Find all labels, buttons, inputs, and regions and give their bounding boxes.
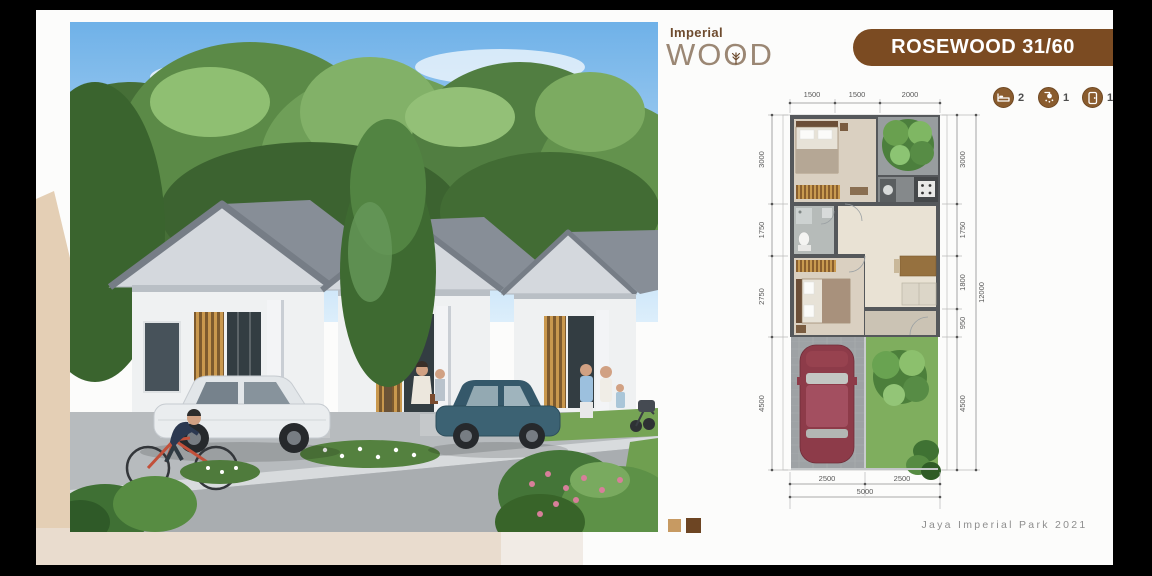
dimension-label: 1750 — [958, 222, 967, 239]
dimension-label: 1750 — [757, 222, 766, 239]
dimension-label: 4500 — [757, 395, 766, 412]
house-render-illustration — [70, 22, 658, 532]
dimension-label-overall: 5000 — [857, 487, 874, 496]
dimension-label: 2750 — [757, 288, 766, 305]
dimension-label: 3000 — [757, 151, 766, 168]
wardrobe — [796, 185, 840, 199]
dimension-label: 950 — [958, 317, 967, 330]
room-master-bedroom — [794, 119, 876, 202]
bedroom-count: 2 — [1018, 92, 1024, 104]
footer-credit: Jaya Imperial Park 2021 — [912, 519, 1097, 531]
hero-render-image — [70, 22, 658, 532]
carport-garden-divider — [864, 337, 866, 470]
logo-wood-text: WOOD — [666, 40, 796, 70]
color-swatch-light — [668, 519, 681, 532]
dimension-label-overall: 12000 — [977, 282, 986, 303]
brand-logo: Imperial WOOD — [666, 25, 796, 70]
door-icon — [1082, 87, 1103, 108]
bathroom-count: 1 — [1063, 92, 1069, 104]
floor-plan: 1500 1500 2000 3000 1750 2750 4500 3000 … — [750, 85, 990, 510]
shower-icon — [1038, 87, 1059, 108]
room-bedroom-2 — [794, 258, 864, 335]
dimension-label: 1800 — [958, 274, 967, 291]
dimension-label: 1500 — [804, 90, 821, 99]
room-bathroom — [794, 206, 834, 254]
dimension-label: 3000 — [958, 151, 967, 168]
spec-bathrooms: 1 — [1038, 87, 1069, 108]
slide-frame: Imperial WOOD ROSEWOOD 31/60 2 1 1 — [0, 0, 1152, 576]
carport — [791, 337, 864, 470]
front-edge — [791, 468, 938, 470]
front-garden — [866, 337, 941, 480]
product-type-label: ROSEWOOD 31/60 — [891, 36, 1075, 59]
carport-count: 1 — [1107, 92, 1113, 104]
spec-carport: 1 — [1082, 87, 1113, 108]
color-swatch-dark — [686, 518, 701, 533]
dimension-label: 2000 — [902, 90, 919, 99]
tree-icon — [730, 49, 742, 65]
dimension-label: 2500 — [894, 474, 911, 483]
rear-garden — [878, 117, 938, 175]
terrace — [865, 311, 936, 335]
room-kitchen — [878, 177, 938, 202]
dimension-label: 1500 — [849, 90, 866, 99]
dimension-label: 2500 — [819, 474, 836, 483]
dimension-label: 4500 — [958, 395, 967, 412]
product-type-banner: ROSEWOOD 31/60 — [853, 29, 1113, 66]
spec-bedrooms: 2 — [993, 87, 1024, 108]
bed-icon — [993, 87, 1014, 108]
